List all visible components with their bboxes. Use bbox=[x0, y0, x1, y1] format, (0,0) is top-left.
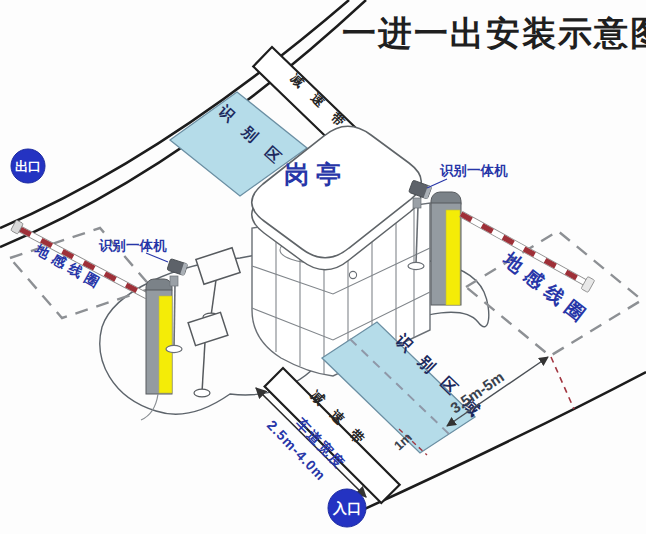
page-title: 一进一出安装示意图 bbox=[342, 14, 646, 52]
entrance-badge-label: 入口 bbox=[332, 500, 361, 516]
installation-diagram: 减速带 识别区域 岗亭 地感线圈 bbox=[0, 0, 646, 534]
recognition-machine-left-label: 识别一体机 bbox=[98, 238, 167, 253]
pole-base bbox=[408, 262, 424, 269]
barrier-machine-right bbox=[431, 192, 461, 305]
exit-badge: 出口 bbox=[11, 149, 45, 183]
diagram-canvas: 减速带 识别区域 岗亭 地感线圈 bbox=[0, 0, 646, 534]
recognition-machine-right-label: 识别一体机 bbox=[439, 163, 508, 178]
pole-base bbox=[166, 345, 182, 352]
booth-door-handle bbox=[349, 271, 356, 278]
exit-badge-label: 出口 bbox=[15, 159, 41, 174]
booth-label: 岗亭 bbox=[284, 160, 348, 188]
entrance-badge: 入口 bbox=[328, 489, 366, 527]
